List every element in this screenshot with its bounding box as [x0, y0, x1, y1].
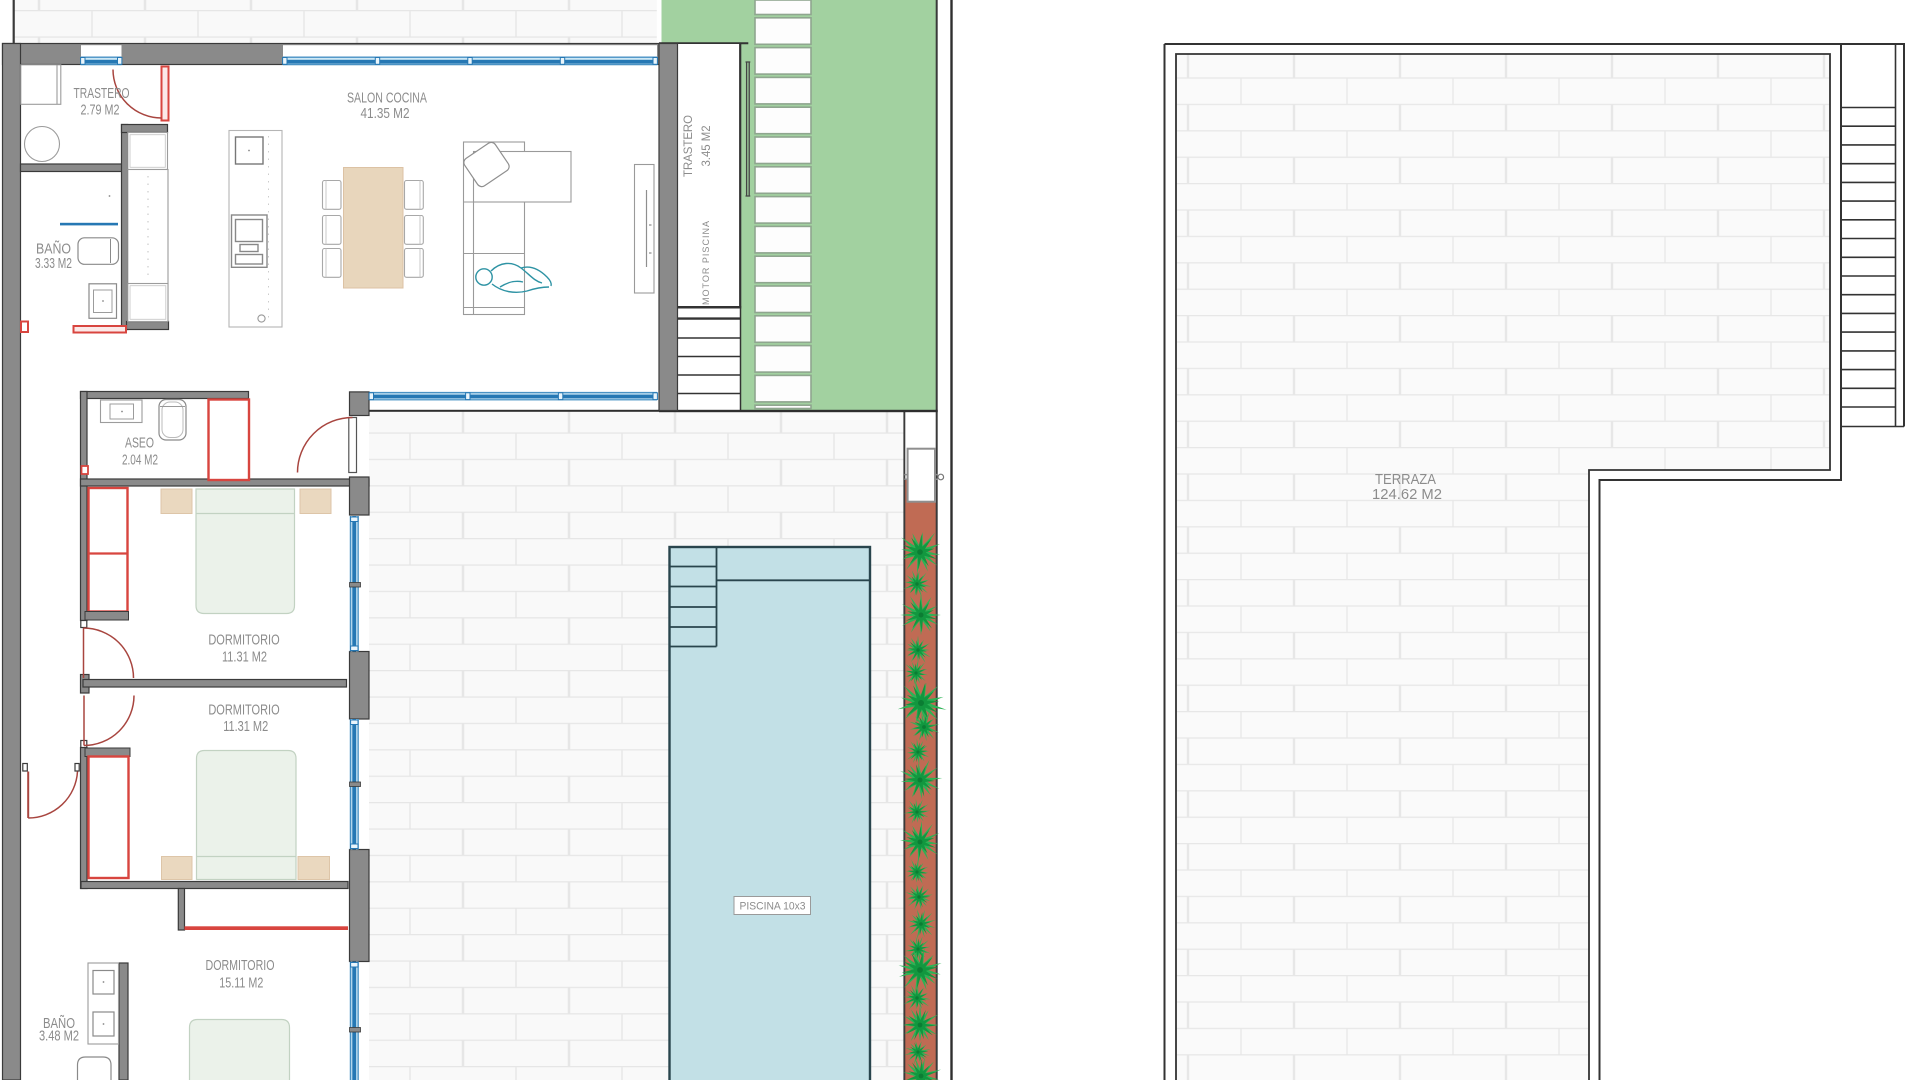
svg-text:2.79 M2: 2.79 M2	[81, 103, 120, 119]
svg-text:11.31 M2: 11.31 M2	[222, 650, 267, 666]
svg-text:TERRAZA: TERRAZA	[1375, 472, 1436, 488]
svg-text:DORMITORIO: DORMITORIO	[206, 958, 275, 974]
svg-text:TRASTERO: TRASTERO	[74, 86, 130, 102]
svg-text:3.48 M2: 3.48 M2	[39, 1029, 79, 1045]
svg-text:3.33 M2: 3.33 M2	[35, 256, 72, 272]
svg-text:3.45 M2: 3.45 M2	[699, 125, 713, 166]
svg-text:2.04 M2: 2.04 M2	[122, 453, 158, 469]
svg-text:SALON COCINA: SALON COCINA	[347, 91, 427, 107]
svg-text:41.35 M2: 41.35 M2	[361, 106, 410, 122]
svg-text:11.31 M2: 11.31 M2	[223, 719, 268, 735]
svg-text:PISCINA 10x3: PISCINA 10x3	[740, 901, 806, 913]
svg-text:TRASTERO: TRASTERO	[681, 115, 695, 177]
svg-text:15.11 M2: 15.11 M2	[219, 975, 263, 991]
svg-text:ASEO: ASEO	[125, 436, 154, 452]
svg-text:DORMITORIO: DORMITORIO	[208, 633, 279, 649]
svg-text:MOTOR PISCINA: MOTOR PISCINA	[701, 221, 711, 305]
svg-text:124.62 M2: 124.62 M2	[1372, 487, 1442, 503]
svg-text:DORMITORIO: DORMITORIO	[208, 703, 279, 719]
